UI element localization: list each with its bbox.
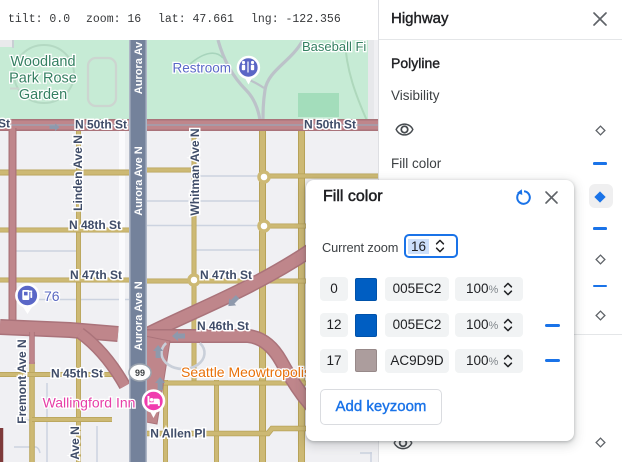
svg-text:N 47th St: N 47th St (200, 268, 252, 282)
svg-text:Whitman Ave N: Whitman Ave N (188, 128, 202, 215)
svg-text:Fremont Ave N: Fremont Ave N (15, 339, 29, 423)
svg-text:N 46th St: N 46th St (197, 319, 249, 333)
svg-text:N Allen Pl: N Allen Pl (150, 427, 206, 441)
svg-text:N 48th St: N 48th St (69, 218, 121, 232)
svg-text:N 50th St: N 50th St (304, 118, 356, 132)
svg-text:99: 99 (135, 368, 145, 378)
svg-text:Aurora Av: Aurora Av (133, 41, 145, 94)
svg-text:Seattle Meowtropolis: Seattle Meowtropolis (181, 364, 311, 380)
svg-text:N 47th St: N 47th St (70, 268, 122, 282)
svg-text:Garden: Garden (19, 87, 67, 103)
svg-text:Park Rose: Park Rose (9, 71, 77, 87)
svg-text:N 45th St: N 45th St (51, 367, 103, 381)
svg-text:Aurora Ave N: Aurora Ave N (133, 281, 145, 351)
svg-text:Baseball Fi: Baseball Fi (302, 40, 366, 54)
svg-text:St: St (0, 117, 10, 131)
svg-text:Aurora Ave N: Aurora Ave N (133, 146, 145, 216)
svg-text:Wallingford Inn: Wallingford Inn (43, 395, 136, 411)
svg-text:Restroom: Restroom (172, 61, 231, 76)
svg-text:Linden Ave N: Linden Ave N (71, 135, 85, 211)
svg-text:N 50th St: N 50th St (75, 118, 127, 132)
svg-text:Ave N: Ave N (68, 426, 82, 460)
svg-text:76: 76 (44, 288, 60, 304)
svg-text:Woodland: Woodland (10, 54, 75, 70)
